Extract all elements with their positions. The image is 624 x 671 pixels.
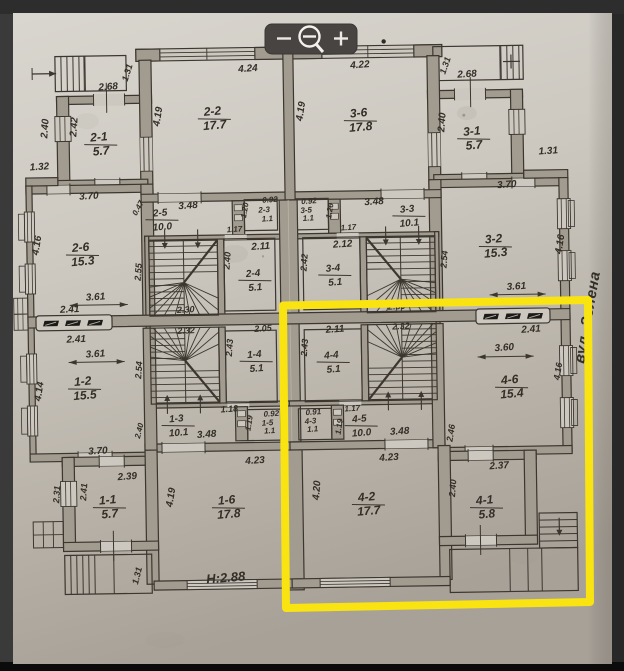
svg-text:1.1: 1.1 [264, 426, 276, 436]
svg-text:3-6: 3-6 [349, 105, 368, 120]
svg-text:3.61: 3.61 [85, 348, 106, 360]
svg-text:3.70: 3.70 [497, 179, 518, 191]
svg-text:4-1: 4-1 [474, 492, 494, 508]
svg-text:3.48: 3.48 [197, 429, 218, 441]
svg-text:2.41: 2.41 [65, 334, 86, 346]
svg-text:1.1: 1.1 [307, 424, 319, 434]
svg-text:2.55: 2.55 [133, 262, 144, 282]
svg-text:10.0: 10.0 [152, 221, 173, 234]
svg-text:10.1: 10.1 [168, 427, 189, 440]
svg-text:4.23: 4.23 [244, 455, 266, 467]
svg-text:1.31: 1.31 [538, 145, 559, 157]
svg-text:3.48: 3.48 [390, 426, 411, 438]
svg-text:2.40: 2.40 [39, 118, 51, 140]
svg-text:4.22: 4.22 [349, 59, 371, 71]
svg-text:2.31: 2.31 [51, 485, 62, 504]
svg-text:3.61: 3.61 [506, 281, 527, 293]
svg-text:2.11: 2.11 [250, 241, 271, 253]
svg-text:1.1: 1.1 [261, 214, 273, 224]
svg-text:5.7: 5.7 [101, 506, 120, 521]
svg-text:15.3: 15.3 [71, 253, 96, 269]
svg-text:2.40: 2.40 [447, 479, 458, 498]
svg-text:2.54: 2.54 [133, 361, 144, 380]
svg-text:4-5: 4-5 [351, 413, 368, 425]
svg-text:17.8: 17.8 [217, 506, 242, 522]
svg-text:2.41: 2.41 [78, 483, 89, 502]
svg-text:15.3: 15.3 [483, 245, 508, 261]
svg-text:3-2: 3-2 [484, 231, 503, 246]
svg-text:1-6: 1-6 [217, 492, 236, 507]
svg-text:2-4: 2-4 [244, 268, 261, 280]
svg-text:17.7: 17.7 [357, 503, 383, 519]
svg-text:1.32: 1.32 [29, 161, 50, 173]
svg-text:5.1: 5.1 [326, 364, 341, 376]
svg-text:1-4: 1-4 [247, 349, 263, 361]
svg-text:10.0: 10.0 [351, 427, 372, 440]
svg-text:2.37: 2.37 [488, 460, 510, 472]
svg-text:5.1: 5.1 [248, 282, 263, 294]
svg-text:1-3: 1-3 [169, 413, 185, 425]
svg-text:4-2: 4-2 [356, 489, 376, 505]
svg-text:3.60: 3.60 [494, 342, 515, 354]
svg-text:1.17: 1.17 [226, 224, 243, 234]
svg-text:2.43: 2.43 [224, 339, 235, 358]
svg-text:4-6: 4-6 [499, 372, 519, 388]
svg-text:5.1: 5.1 [328, 277, 343, 289]
svg-text:3.61: 3.61 [85, 291, 106, 303]
svg-text:4-4: 4-4 [323, 350, 340, 362]
svg-text:4.20: 4.20 [311, 480, 323, 502]
svg-text:2-6: 2-6 [70, 240, 90, 256]
svg-text:1.17: 1.17 [344, 403, 361, 413]
svg-text:15.5: 15.5 [73, 387, 98, 403]
svg-text:2.40: 2.40 [436, 112, 448, 134]
svg-text:2.54: 2.54 [438, 250, 449, 269]
svg-text:2.68: 2.68 [97, 81, 119, 93]
svg-text:17.7: 17.7 [202, 117, 228, 133]
svg-text:1-1: 1-1 [98, 492, 117, 507]
svg-text:1.17: 1.17 [340, 222, 357, 232]
svg-text:3-4: 3-4 [325, 263, 341, 275]
svg-text:5.8: 5.8 [478, 506, 496, 521]
svg-text:2.30: 2.30 [176, 304, 195, 315]
svg-text:2.42: 2.42 [68, 117, 80, 139]
svg-text:2.11: 2.11 [324, 324, 345, 336]
svg-text:1.1: 1.1 [302, 213, 314, 223]
svg-text:3-3: 3-3 [399, 203, 415, 215]
svg-text:15.4: 15.4 [500, 385, 525, 401]
svg-text:2.05: 2.05 [253, 323, 273, 334]
svg-text:3.70: 3.70 [88, 445, 109, 457]
svg-text:4.23: 4.23 [378, 452, 400, 464]
svg-text:2.32: 2.32 [391, 321, 410, 332]
svg-text:2.42: 2.42 [298, 253, 309, 272]
svg-text:5.7: 5.7 [92, 143, 111, 158]
svg-text:4.24: 4.24 [237, 63, 259, 75]
svg-text:2.39: 2.39 [116, 471, 138, 483]
svg-text:3.70: 3.70 [79, 190, 100, 202]
svg-text:1-2: 1-2 [73, 373, 92, 388]
svg-text:5.7: 5.7 [465, 137, 484, 152]
svg-text:2.32: 2.32 [176, 325, 195, 336]
svg-text:2.68: 2.68 [456, 68, 478, 80]
svg-text:5.1: 5.1 [249, 363, 264, 375]
svg-text:2-5: 2-5 [151, 207, 168, 219]
svg-text:2-2: 2-2 [202, 103, 222, 119]
svg-text:2.40: 2.40 [221, 252, 232, 271]
svg-text:2.41: 2.41 [520, 323, 542, 335]
svg-text:0.92: 0.92 [262, 195, 279, 205]
svg-text:3.48: 3.48 [178, 200, 199, 212]
svg-text:2.12: 2.12 [332, 238, 354, 250]
svg-text:1.18: 1.18 [220, 403, 238, 414]
svg-text:2.41: 2.41 [59, 304, 80, 316]
svg-text:3-1: 3-1 [463, 123, 482, 138]
svg-text:2-1: 2-1 [89, 129, 109, 145]
svg-text:3.48: 3.48 [364, 196, 385, 208]
svg-text:10.1: 10.1 [399, 217, 420, 230]
svg-text:17.8: 17.8 [348, 119, 373, 135]
svg-text:2.43: 2.43 [299, 338, 310, 357]
